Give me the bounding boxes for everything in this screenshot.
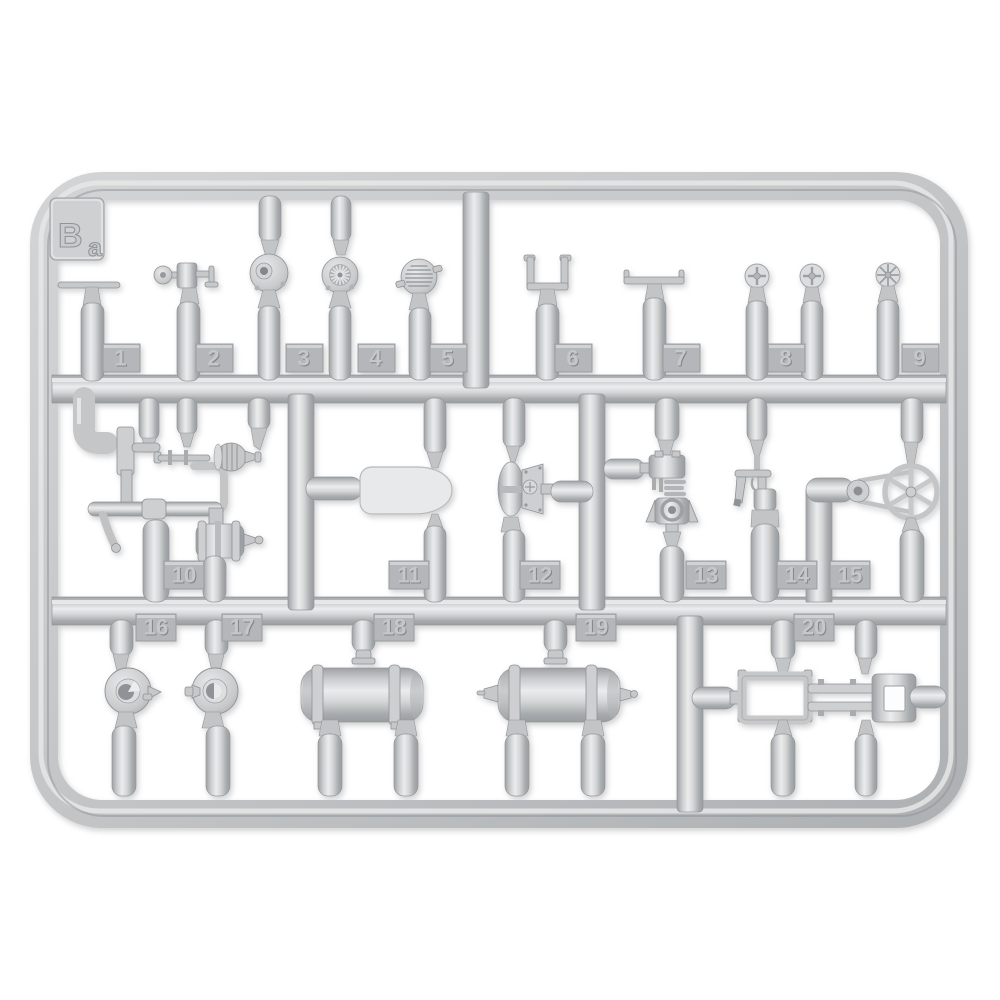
svg-text:2: 2 [207, 346, 219, 371]
part-tab-15: 15 15 [830, 561, 870, 589]
svg-text:14: 14 [785, 563, 810, 588]
part-tab-17: 17 17 [222, 614, 262, 641]
part-19-tank-with-tap [477, 620, 638, 796]
svg-text:11: 11 [397, 563, 420, 588]
divider-middle-left [288, 394, 314, 610]
part-tab-13: 13 13 [686, 561, 726, 589]
part-tab-5: 5 5 [430, 344, 467, 372]
part-9-spoked-handwheel [876, 263, 900, 380]
part-tab-9: 9 9 [902, 344, 939, 372]
svg-text:1: 1 [114, 346, 126, 371]
part-4-ribbed-fan-disc [322, 196, 358, 380]
part-15-belt-pulley [806, 398, 937, 602]
svg-text:7: 7 [674, 346, 686, 371]
part-tab-6: 6 6 [555, 344, 592, 372]
photo-background: B a [0, 0, 1000, 1000]
svg-text:9: 9 [913, 346, 925, 371]
part-tab-7: 7 7 [663, 344, 700, 372]
part-16-wheel-hub-open [105, 620, 161, 796]
part-tab-18: 18 18 [374, 614, 414, 641]
svg-text:17: 17 [230, 615, 254, 640]
part-11-seat [306, 398, 452, 602]
svg-text:4: 4 [369, 346, 382, 371]
part-3-round-housing [250, 196, 288, 380]
svg-text:18: 18 [382, 615, 406, 640]
part-20-chassis-frame [692, 620, 946, 796]
svg-text:19: 19 [584, 615, 608, 640]
svg-text:16: 16 [144, 615, 168, 640]
svg-text:12: 12 [528, 563, 552, 588]
svg-text:13: 13 [694, 563, 718, 588]
sprue-label-plate: B a [50, 198, 104, 262]
part-17-wheel-hub-capped [185, 620, 238, 796]
part-tab-4: 4 4 [358, 344, 395, 372]
part-tab-12: 12 12 [520, 561, 560, 589]
part-18-tank [301, 620, 423, 796]
part-tab-8: 8 8 [768, 344, 805, 372]
part-tab-1: 1 1 [103, 344, 140, 372]
part-tab-16: 16 16 [136, 614, 176, 641]
svg-text:10: 10 [172, 563, 196, 588]
part-tab-11: 11 11 [389, 561, 429, 589]
svg-text:15: 15 [838, 563, 862, 588]
svg-text:5: 5 [441, 346, 453, 371]
part-tab-10: 10 10 [164, 561, 204, 589]
part-tab-19: 19 19 [576, 614, 616, 641]
part-tab-20: 20 20 [794, 614, 834, 641]
part-tab-14: 14 14 [777, 561, 817, 589]
part-8-handwheel-a [745, 264, 769, 380]
part-tab-2: 2 2 [196, 344, 233, 372]
divider-bottom-row [677, 616, 703, 812]
part-13-carburetor [604, 398, 698, 602]
svg-text:6: 6 [566, 346, 578, 371]
sprue-photo: B a [0, 0, 1000, 1000]
part-tab-3: 3 3 [286, 344, 323, 372]
svg-text:3: 3 [297, 346, 309, 371]
svg-text:20: 20 [802, 615, 826, 640]
svg-text:8: 8 [779, 346, 791, 371]
part-14-grease-gun [733, 398, 779, 602]
